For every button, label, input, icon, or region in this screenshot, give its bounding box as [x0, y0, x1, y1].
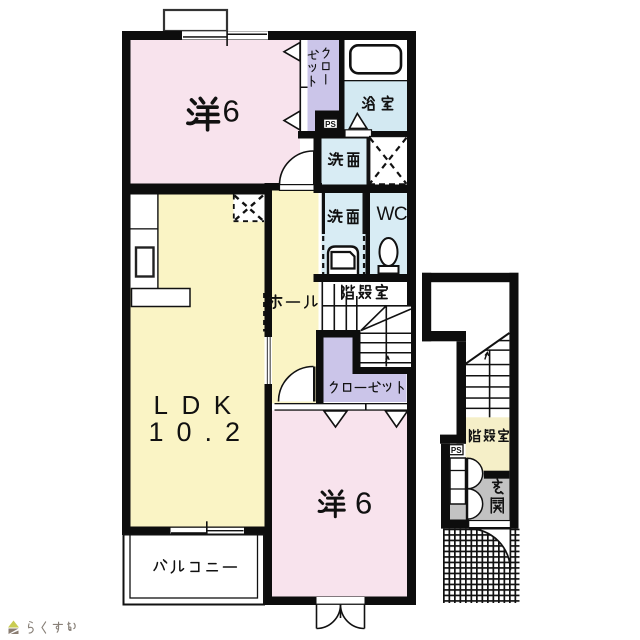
- svg-text:LDK: LDK: [154, 390, 245, 420]
- svg-text:PS: PS: [325, 120, 336, 129]
- svg-text:6: 6: [223, 94, 240, 129]
- svg-text:PS: PS: [451, 446, 462, 455]
- svg-text:10.2: 10.2: [149, 417, 254, 447]
- svg-text:WC: WC: [377, 204, 408, 225]
- svg-text:6: 6: [355, 486, 372, 521]
